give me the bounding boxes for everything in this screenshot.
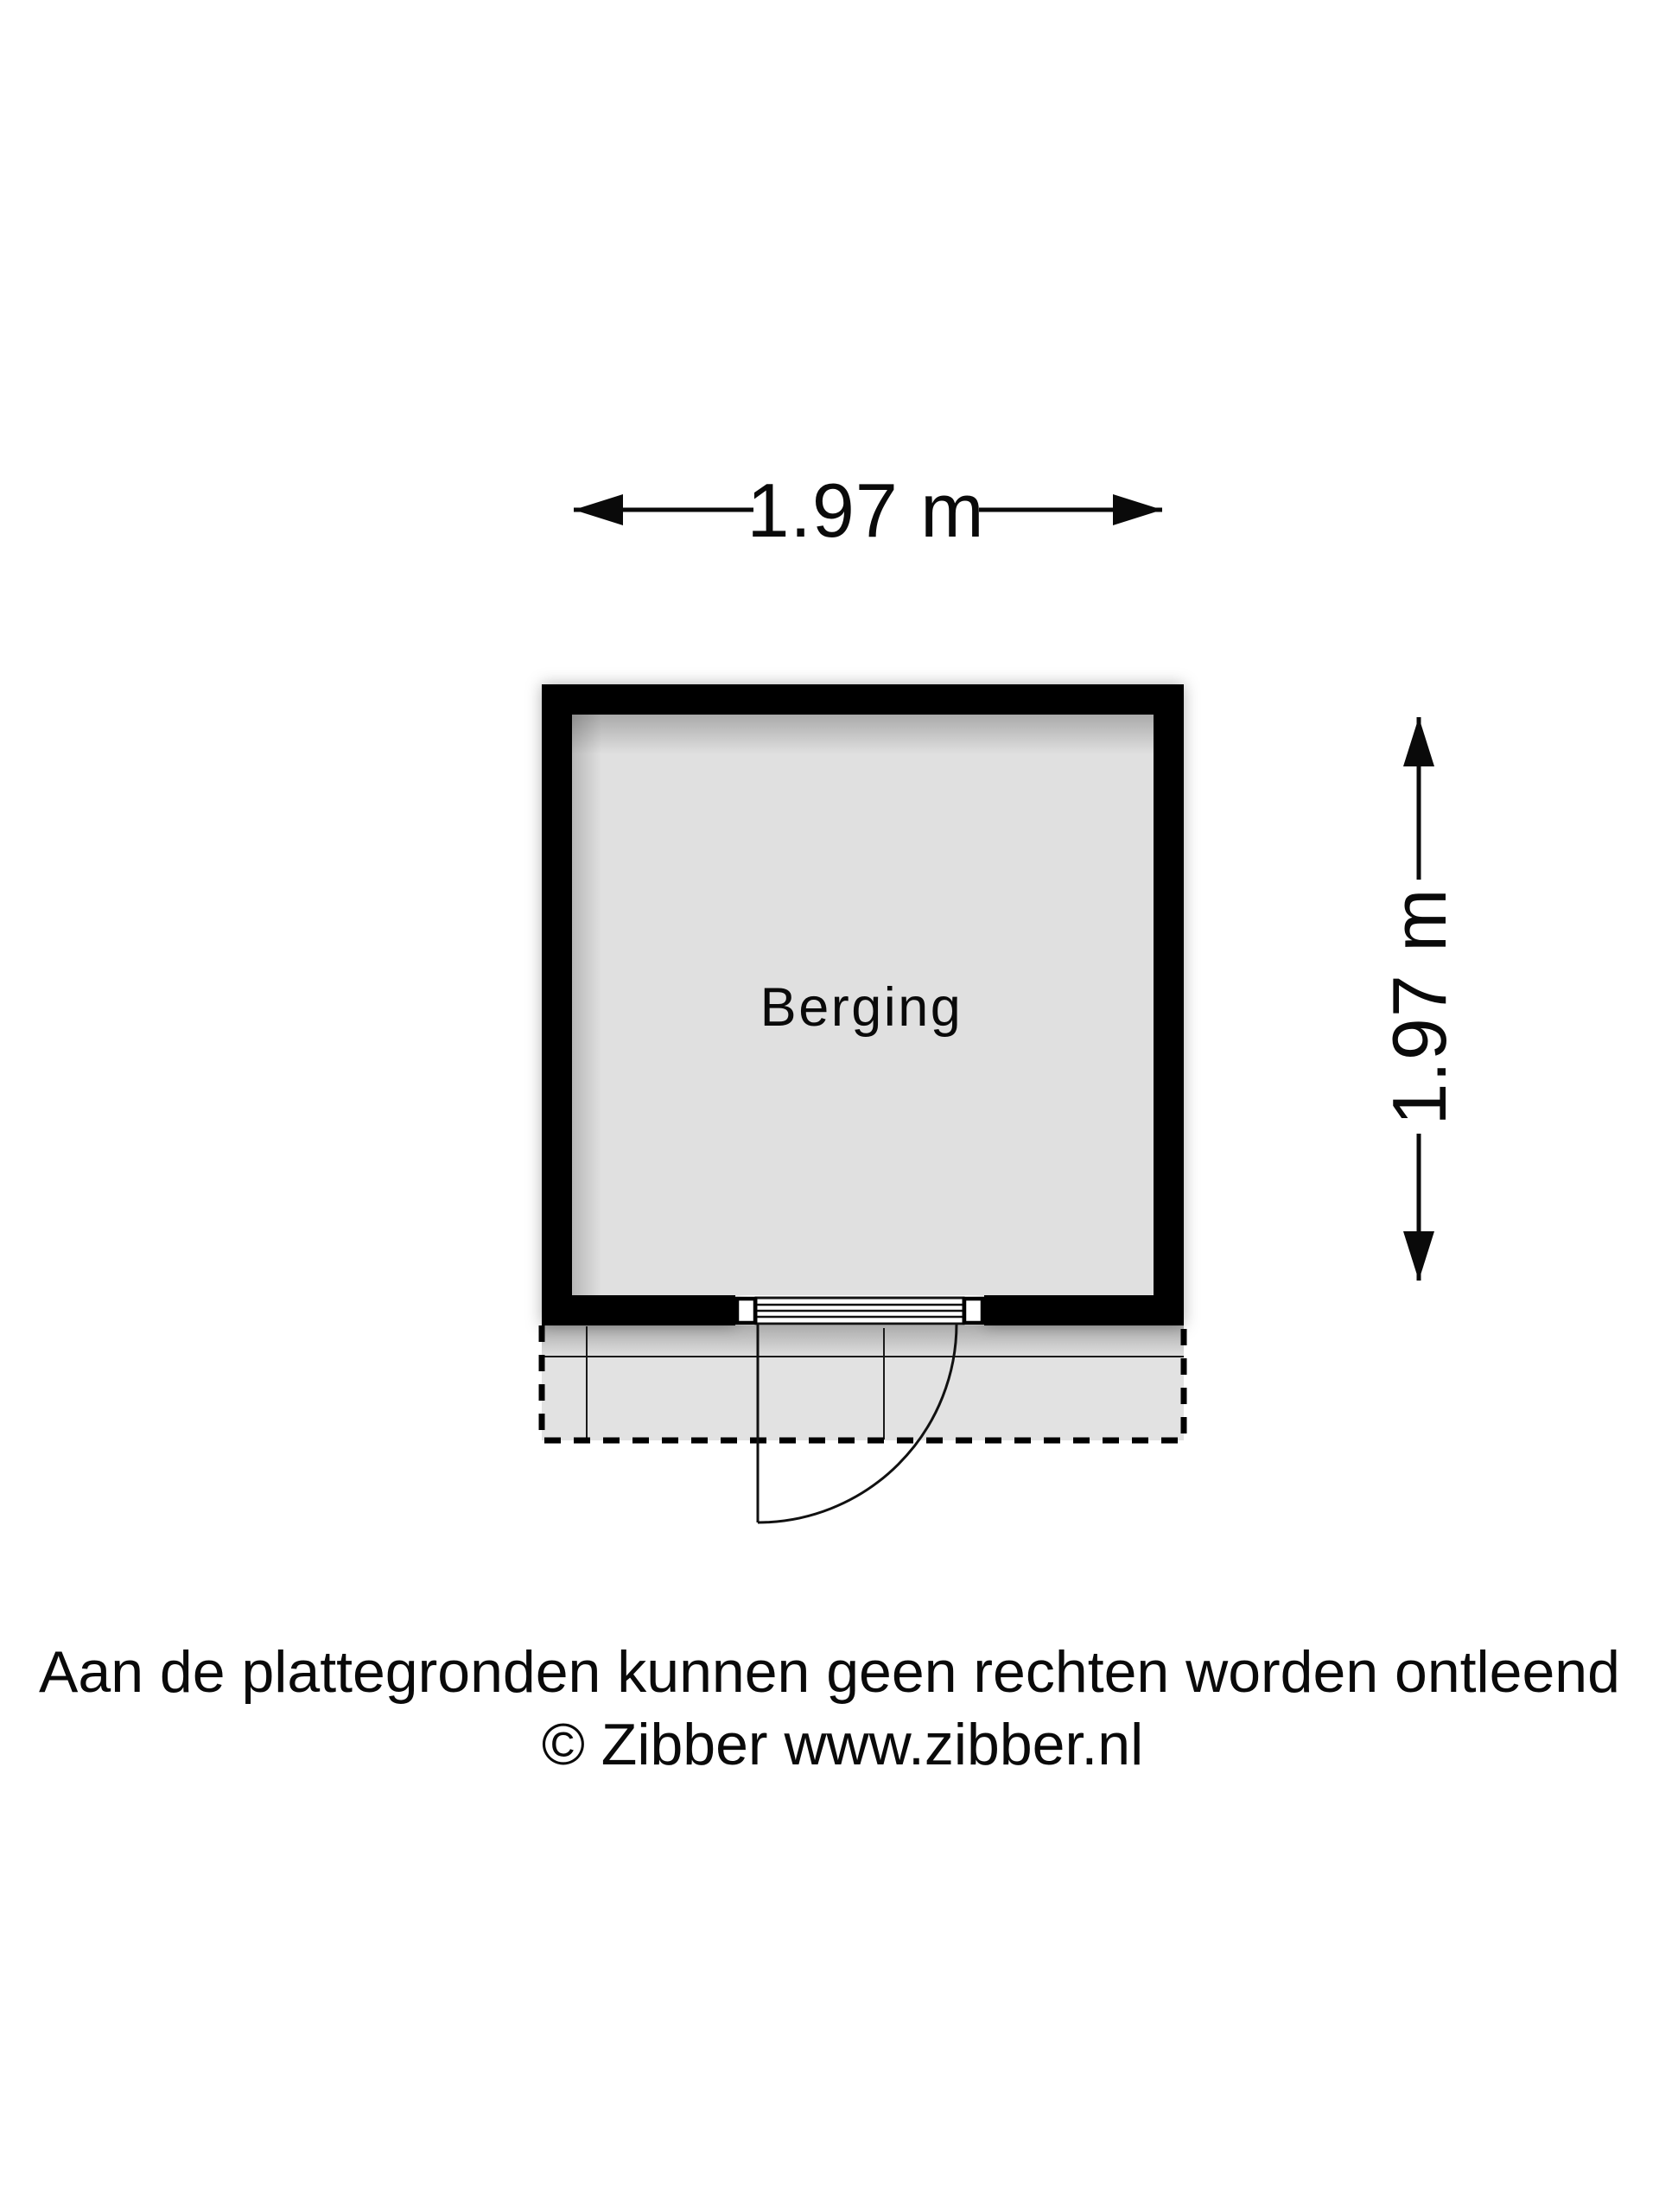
wall-bottom-right [984, 1295, 1184, 1325]
arrow-left-icon [574, 494, 623, 525]
terrace-wall-shadow [542, 1325, 1184, 1358]
footer: Aan de plattegronden kunnen geen rechten… [39, 1639, 1620, 1777]
arrow-right-icon [1113, 494, 1162, 525]
arrow-down-icon [1403, 1231, 1434, 1281]
door-post-right [964, 1299, 982, 1323]
door-post-left [737, 1299, 755, 1323]
floorplan-canvas: 1.97 m 1.97 m [0, 0, 1659, 2212]
room-inner-shadow-left [572, 715, 601, 1295]
room-inner-shadow-top [572, 715, 1154, 754]
room-label: Berging [760, 977, 963, 1038]
floorplan-svg: 1.97 m 1.97 m [0, 0, 1659, 2212]
right-dimension-label: 1.97 m [1376, 887, 1462, 1125]
wall-bottom-left [542, 1295, 735, 1325]
right-dimension: 1.97 m [1376, 717, 1462, 1281]
wall-left [542, 684, 572, 1325]
wall-top [542, 684, 1184, 715]
wall-right [1154, 684, 1184, 1325]
terrace [542, 1325, 1184, 1440]
arrow-up-icon [1403, 717, 1434, 766]
top-dimension-label: 1.97 m [747, 467, 984, 553]
disclaimer-text: Aan de plattegronden kunnen geen rechten… [39, 1639, 1620, 1705]
room: Berging [542, 684, 1184, 1325]
copyright-text: © Zibber www.zibber.nl [542, 1712, 1143, 1777]
top-dimension: 1.97 m [574, 467, 1162, 553]
